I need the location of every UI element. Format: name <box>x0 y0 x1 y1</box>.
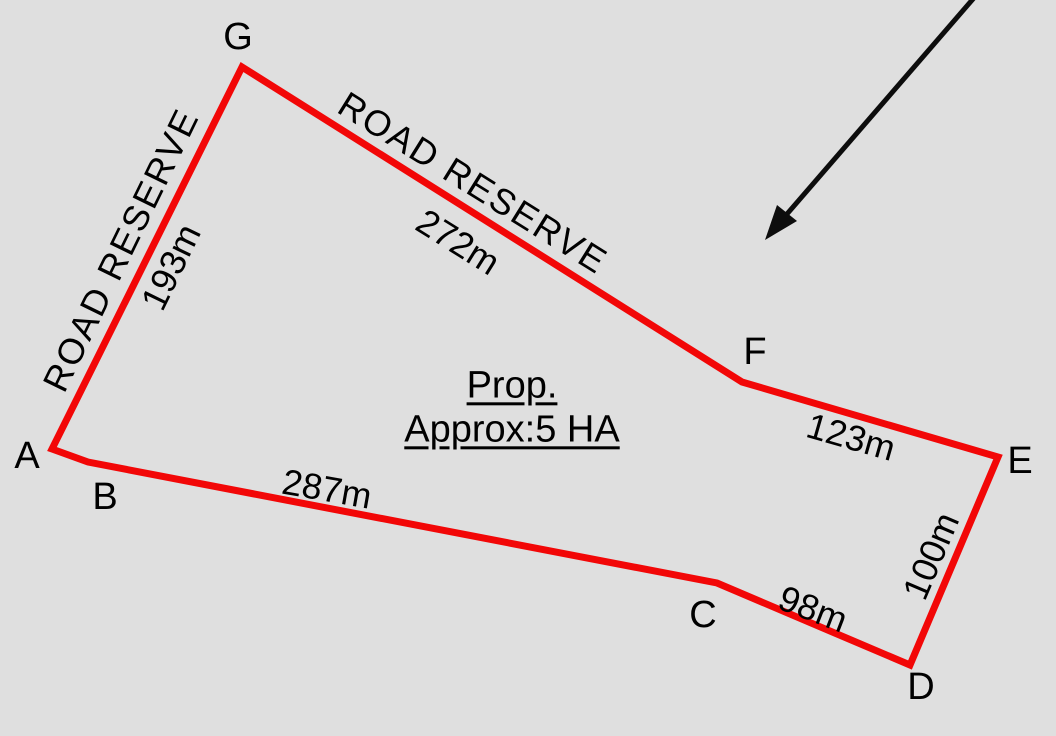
survey-sketch-canvas: A B C D E F G ROAD RESERVE ROAD RESERVE … <box>0 0 1056 736</box>
north-arrow-shaft <box>787 0 992 214</box>
area-annotation-line2: Approx:5 HA <box>404 408 619 452</box>
vertex-label-a: A <box>14 436 39 478</box>
vertex-label-f: F <box>743 332 766 374</box>
vertex-label-d: D <box>907 667 934 709</box>
area-annotation-line1: Prop. <box>404 364 619 408</box>
area-annotation: Prop. Approx:5 HA <box>404 364 619 451</box>
vertex-label-e: E <box>1007 441 1032 483</box>
vertex-label-c: C <box>689 595 716 637</box>
north-arrow-icon <box>765 0 992 240</box>
vertex-label-g: G <box>223 17 253 59</box>
vertex-label-b: B <box>92 477 117 519</box>
